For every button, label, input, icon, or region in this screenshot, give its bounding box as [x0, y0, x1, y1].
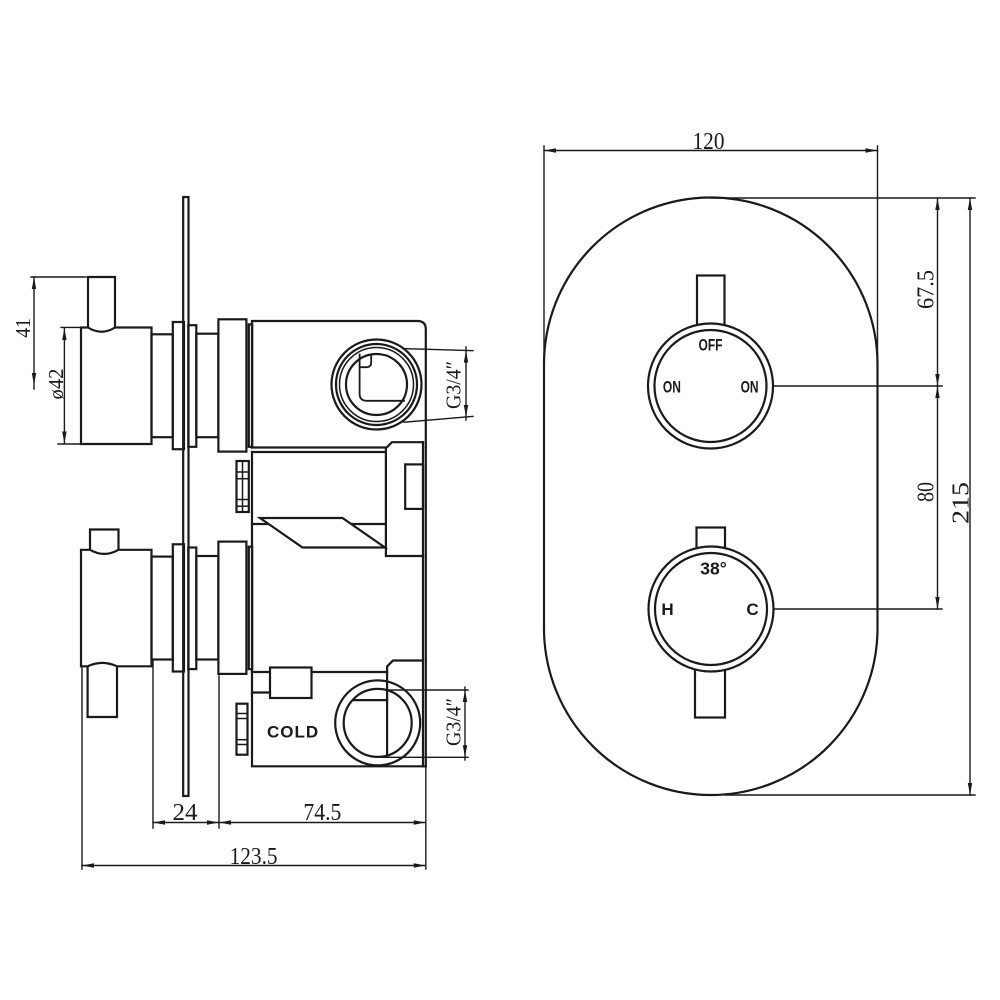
svg-text:ON: ON [663, 378, 681, 396]
svg-text:120: 120 [693, 129, 725, 155]
svg-text:ON: ON [741, 378, 759, 396]
svg-text:ø42: ø42 [44, 369, 68, 400]
svg-text:H: H [661, 600, 673, 619]
svg-text:123.5: 123.5 [230, 844, 278, 870]
svg-text:74.5: 74.5 [303, 800, 341, 826]
svg-text:24: 24 [173, 800, 198, 826]
svg-text:G3/4″: G3/4″ [442, 698, 466, 746]
svg-text:41: 41 [11, 318, 35, 338]
svg-text:38°: 38° [700, 559, 726, 579]
svg-text:OFF: OFF [699, 336, 723, 354]
svg-text:G3/4″: G3/4″ [442, 361, 466, 409]
svg-text:215: 215 [949, 482, 975, 524]
svg-text:C: C [746, 600, 758, 619]
svg-text:67.5: 67.5 [914, 270, 940, 309]
svg-text:80: 80 [914, 482, 940, 502]
svg-text:COLD: COLD [267, 723, 319, 742]
